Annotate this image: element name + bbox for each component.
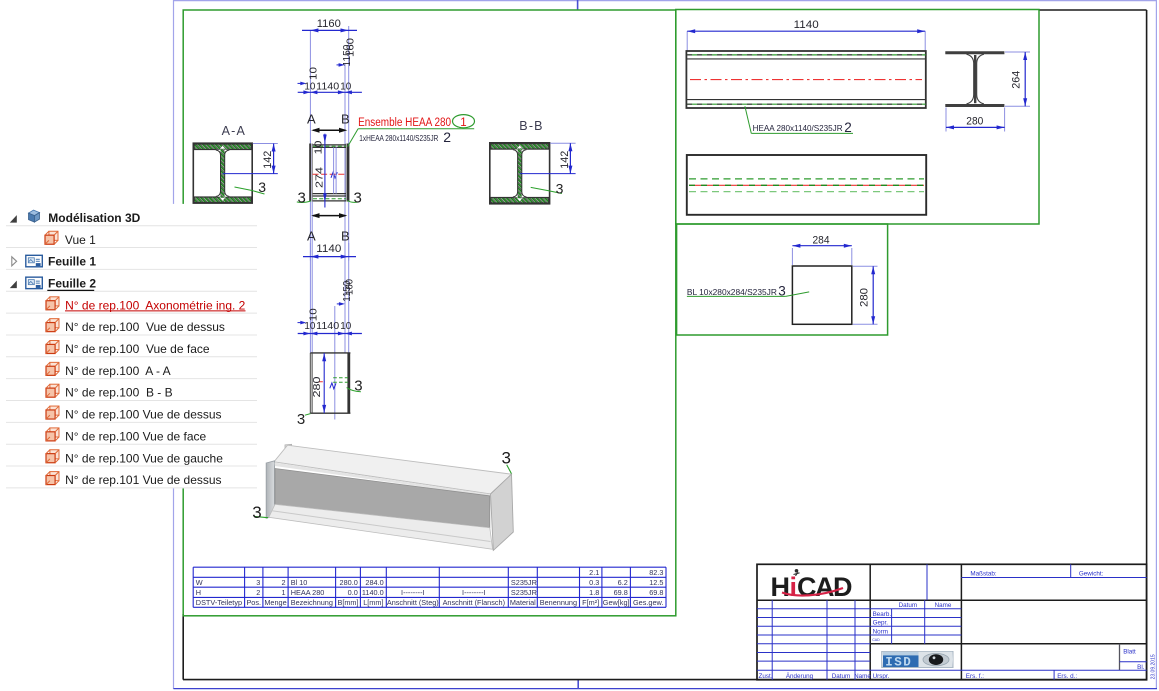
- svg-text:1: 1: [281, 588, 285, 597]
- svg-text:HEAA 280x1140/S235JR: HEAA 280x1140/S235JR: [753, 124, 843, 133]
- svg-text:Urspr.: Urspr.: [873, 673, 890, 680]
- svg-text:N° de rep.100 B - B: N° de rep.100 B - B: [65, 386, 173, 400]
- svg-text:Material: Material: [510, 598, 536, 607]
- svg-text:2: 2: [844, 120, 852, 135]
- svg-text:69.8: 69.8: [614, 588, 628, 597]
- svg-text:N° de rep.100 Axonométrie ing: N° de rep.100 Axonométrie ing. 2: [65, 298, 246, 312]
- svg-text:69.8: 69.8: [649, 588, 663, 597]
- svg-text:284.0: 284.0: [365, 578, 383, 587]
- svg-text:3: 3: [354, 378, 362, 395]
- svg-text:0.3: 0.3: [589, 578, 599, 587]
- svg-text:B: B: [341, 229, 350, 244]
- svg-text:10: 10: [340, 320, 351, 332]
- svg-text:B-B: B-B: [519, 119, 543, 133]
- svg-text:Bezeichnung: Bezeichnung: [291, 598, 333, 607]
- svg-text:3: 3: [298, 190, 306, 207]
- svg-text:3: 3: [297, 411, 305, 428]
- svg-text:10: 10: [308, 67, 320, 80]
- svg-text:Anschnitt (Steg): Anschnitt (Steg): [387, 598, 439, 607]
- svg-text:2: 2: [281, 578, 285, 587]
- svg-text:Modélisation 3D: Modélisation 3D: [48, 211, 140, 225]
- svg-text:23.09.2015: 23.09.2015: [1151, 654, 1157, 679]
- svg-text:1.8: 1.8: [589, 588, 599, 597]
- svg-text:Feuille 1: Feuille 1: [48, 255, 96, 269]
- svg-text:3: 3: [502, 449, 511, 468]
- svg-text:82.3: 82.3: [649, 568, 663, 577]
- svg-text:2: 2: [443, 129, 451, 145]
- svg-text:S235JR: S235JR: [511, 578, 537, 587]
- svg-text:I--------I: I--------I: [462, 588, 486, 597]
- svg-text:142: 142: [559, 151, 571, 169]
- svg-text:N° de rep.100 A - A: N° de rep.100 A - A: [65, 364, 171, 378]
- svg-text:W: W: [196, 578, 203, 587]
- svg-text:10: 10: [312, 140, 324, 154]
- svg-text:N° de rep.100 Vue de face: N° de rep.100 Vue de face: [65, 342, 210, 356]
- svg-text:I--------I: I--------I: [401, 588, 425, 597]
- svg-text:Maßstab:: Maßstab:: [970, 571, 996, 578]
- svg-text:10: 10: [304, 80, 315, 92]
- svg-text:3: 3: [556, 181, 564, 197]
- svg-text:1: 1: [460, 117, 466, 129]
- svg-text:A-A: A-A: [222, 124, 246, 138]
- svg-text:N° de rep.101 Vue de dessus: N° de rep.101 Vue de dessus: [65, 473, 221, 487]
- svg-text:280: 280: [858, 288, 870, 307]
- svg-text:1140: 1140: [794, 19, 819, 31]
- svg-text:280: 280: [311, 376, 323, 397]
- svg-text:S235JR: S235JR: [511, 588, 537, 597]
- svg-text:264: 264: [1010, 71, 1022, 89]
- svg-text:BL 10x280x284/S235JR: BL 10x280x284/S235JR: [687, 288, 777, 297]
- svg-text:H: H: [196, 588, 201, 597]
- svg-text:Bl 10: Bl 10: [291, 578, 308, 587]
- svg-text:Norm: Norm: [873, 628, 888, 635]
- svg-text:A: A: [307, 229, 316, 244]
- svg-text:Bl.: Bl.: [1137, 664, 1145, 671]
- svg-text:Gewicht:: Gewicht:: [1079, 571, 1104, 578]
- svg-text:N° de rep.100 Vue de dessus: N° de rep.100 Vue de dessus: [65, 320, 225, 334]
- svg-text:3: 3: [258, 179, 266, 195]
- svg-text:Ers. d.:: Ers. d.:: [1057, 673, 1077, 680]
- svg-text:1140: 1140: [316, 243, 341, 255]
- svg-text:Name: Name: [935, 602, 952, 609]
- svg-text:Name: Name: [854, 673, 871, 680]
- svg-text:H: H: [771, 572, 791, 602]
- svg-text:HEAA 280: HEAA 280: [291, 588, 325, 597]
- svg-text:2.1: 2.1: [589, 568, 599, 577]
- svg-text:N° de rep.100 Vue de dessus: N° de rep.100 Vue de dessus: [65, 408, 221, 422]
- svg-text:10: 10: [304, 320, 315, 332]
- svg-text:Ers. f.:: Ers. f.:: [966, 673, 984, 680]
- svg-text:142: 142: [262, 151, 274, 169]
- svg-text:1xHEAA 280x1140/S235JR: 1xHEAA 280x1140/S235JR: [359, 134, 438, 143]
- svg-text:F[m²]: F[m²]: [582, 598, 599, 607]
- svg-text:Ges.gew.: Ges.gew.: [633, 598, 663, 607]
- svg-text:160: 160: [344, 279, 356, 295]
- svg-text:10: 10: [340, 80, 351, 92]
- svg-text:Datum: Datum: [832, 673, 851, 680]
- svg-text:Ensemble HEAA 280: Ensemble HEAA 280: [358, 117, 451, 129]
- svg-text:0.0: 0.0: [348, 588, 358, 597]
- svg-text:ISD: ISD: [885, 656, 912, 670]
- svg-text:Zust.: Zust.: [759, 673, 773, 680]
- svg-text:280: 280: [966, 116, 983, 128]
- svg-text:Datum: Datum: [899, 602, 918, 609]
- svg-text:Änderung: Änderung: [786, 672, 814, 680]
- svg-text:A: A: [307, 112, 316, 127]
- svg-text:Bearb.: Bearb.: [873, 611, 892, 618]
- svg-text:CAD: CAD: [872, 638, 880, 642]
- svg-text:DSTV-Teiletyp: DSTV-Teiletyp: [196, 598, 242, 607]
- svg-text:B: B: [341, 112, 350, 127]
- svg-text:CAD: CAD: [797, 572, 852, 602]
- svg-text:6.2: 6.2: [618, 578, 628, 587]
- svg-text:Gepr.: Gepr.: [873, 620, 889, 627]
- svg-text:1160: 1160: [317, 18, 341, 30]
- svg-text:B[mm]: B[mm]: [337, 598, 358, 607]
- svg-text:2: 2: [256, 588, 260, 597]
- svg-text:N° de rep.100 Vue de gauche: N° de rep.100 Vue de gauche: [65, 451, 223, 465]
- svg-text:Anschnitt (Flansch): Anschnitt (Flansch): [443, 598, 505, 607]
- svg-text:1140: 1140: [316, 320, 339, 332]
- svg-text:Feuille 2: Feuille 2: [48, 276, 96, 290]
- svg-text:Vue 1: Vue 1: [65, 233, 96, 247]
- svg-text:Blatt: Blatt: [1123, 649, 1136, 656]
- svg-text:L[mm]: L[mm]: [363, 598, 383, 607]
- svg-text:i: i: [790, 572, 798, 602]
- svg-text:284: 284: [813, 235, 830, 247]
- svg-text:3: 3: [252, 503, 261, 522]
- svg-text:280.0: 280.0: [340, 578, 358, 587]
- svg-text:Gew[kg]: Gew[kg]: [603, 598, 630, 607]
- svg-text:3: 3: [256, 578, 260, 587]
- svg-text:3: 3: [354, 190, 362, 207]
- svg-text:Pos.: Pos.: [246, 598, 261, 607]
- svg-text:1140: 1140: [316, 80, 339, 92]
- svg-text:274: 274: [313, 167, 325, 188]
- svg-text:N° de rep.100 Vue de face: N° de rep.100 Vue de face: [65, 429, 206, 443]
- svg-text:12.5: 12.5: [649, 578, 663, 587]
- svg-text:160: 160: [344, 38, 356, 57]
- svg-text:1140.0: 1140.0: [362, 588, 384, 597]
- svg-text:Benennung: Benennung: [540, 598, 577, 607]
- svg-text:Menge: Menge: [264, 598, 286, 607]
